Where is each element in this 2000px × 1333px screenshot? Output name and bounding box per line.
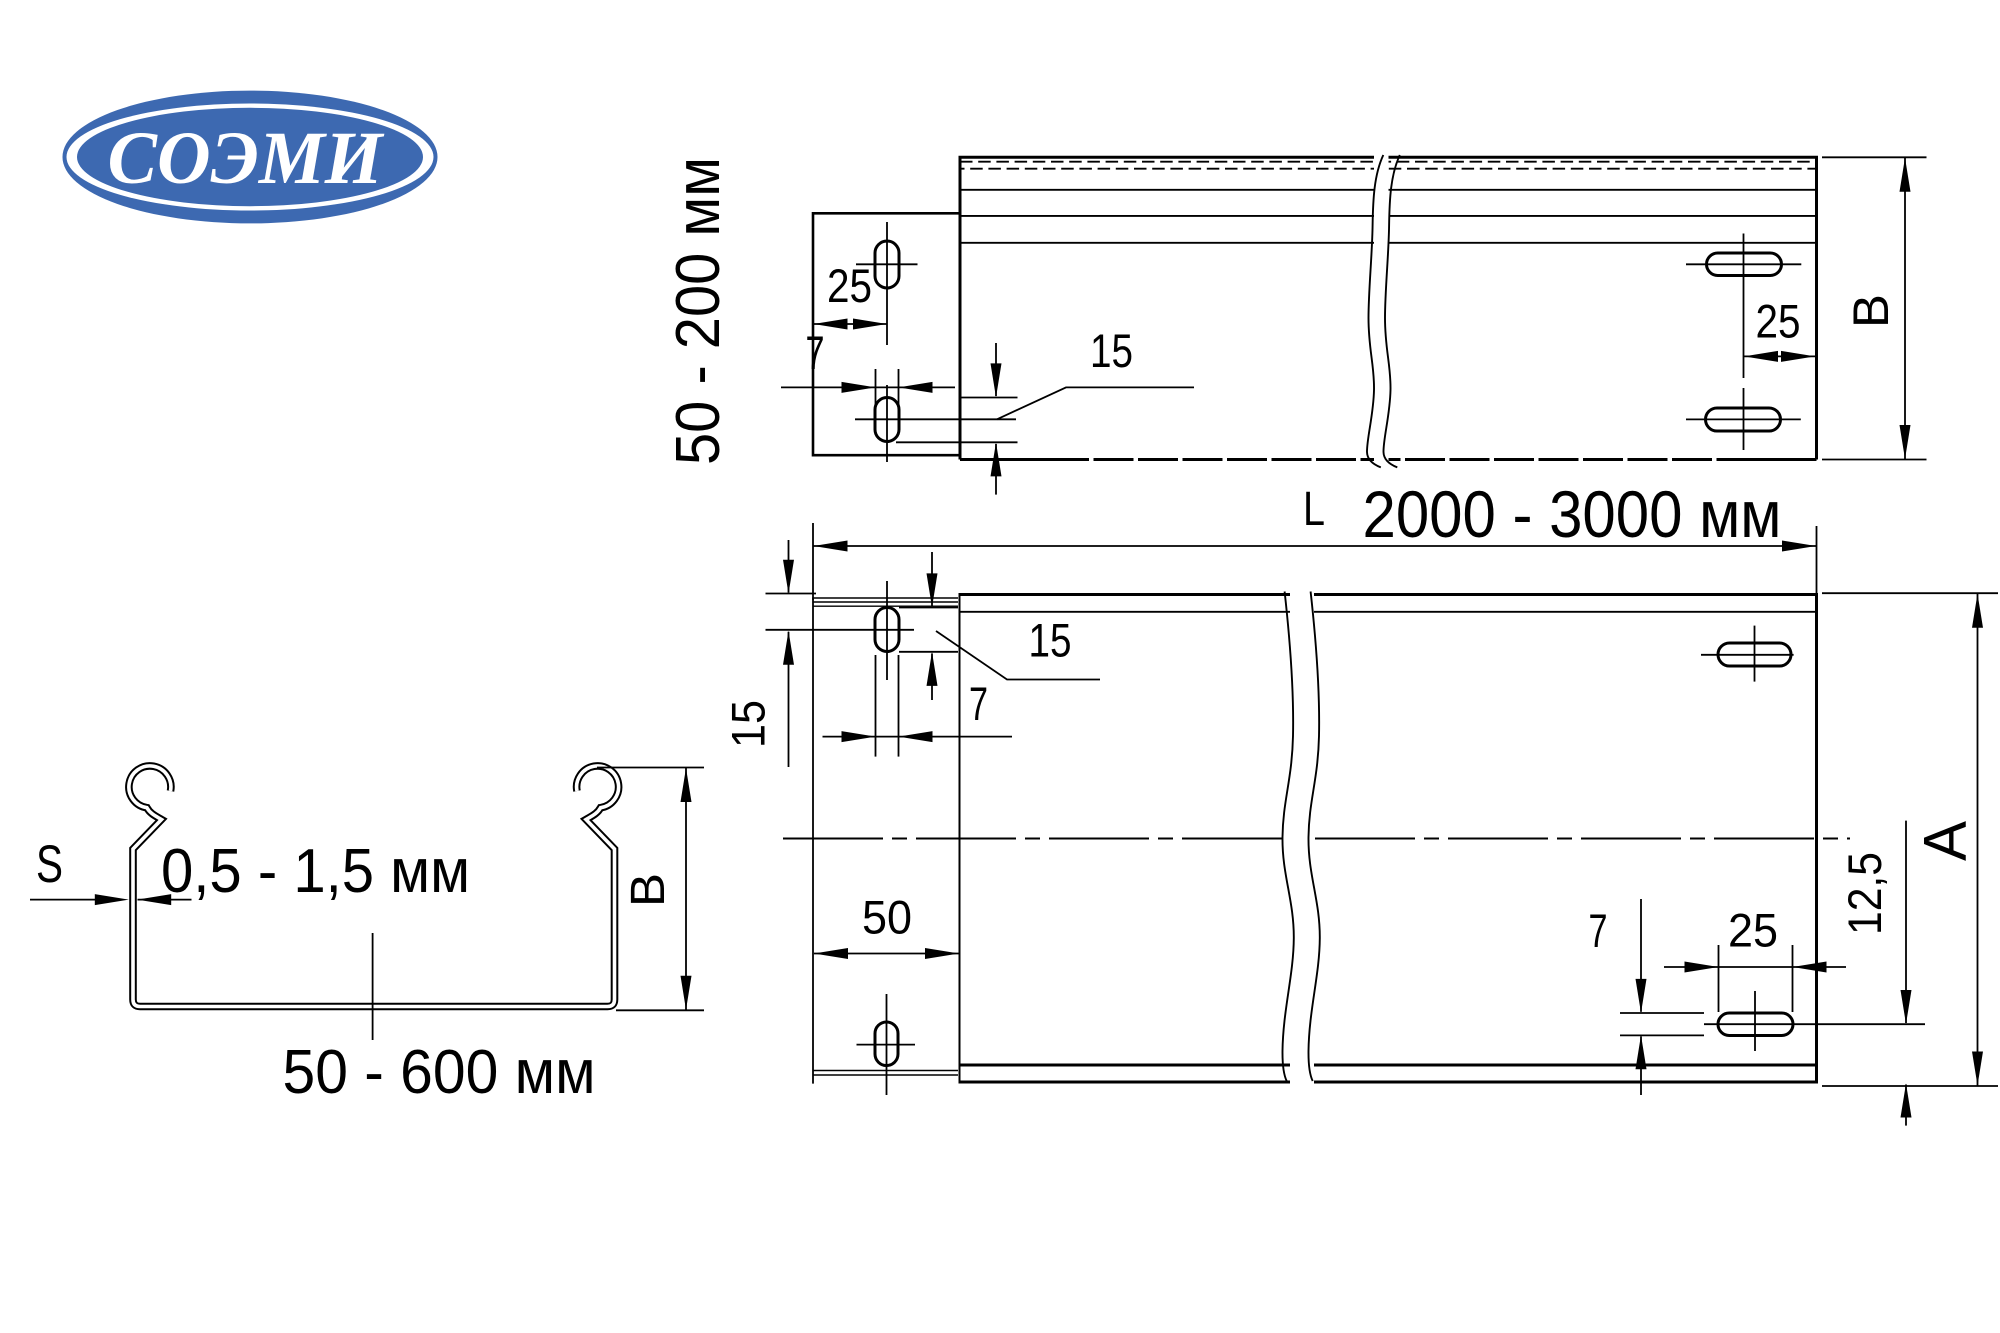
svg-text:50 - 200 мм: 50 - 200 мм bbox=[664, 157, 733, 465]
svg-text:7: 7 bbox=[806, 326, 825, 379]
svg-text:50: 50 bbox=[862, 891, 912, 944]
svg-text:0,5 - 1,5 мм: 0,5 - 1,5 мм bbox=[161, 837, 470, 906]
svg-text:15: 15 bbox=[722, 700, 775, 748]
svg-text:25: 25 bbox=[1756, 295, 1801, 348]
svg-text:50 - 600 мм: 50 - 600 мм bbox=[283, 1038, 596, 1107]
svg-text:12,5: 12,5 bbox=[1838, 852, 1891, 935]
svg-text:7: 7 bbox=[969, 677, 988, 730]
svg-text:15: 15 bbox=[1090, 324, 1133, 377]
svg-text:7: 7 bbox=[1589, 904, 1608, 957]
svg-text:L: L bbox=[1303, 483, 1325, 536]
svg-text:25: 25 bbox=[1728, 904, 1778, 957]
svg-text:2000 - 3000 мм: 2000 - 3000 мм bbox=[1363, 477, 1782, 551]
svg-text:B: B bbox=[622, 873, 675, 907]
svg-text:15: 15 bbox=[1029, 614, 1072, 667]
svg-text:СОЭМИ: СОЭМИ bbox=[108, 117, 386, 200]
svg-text:A: A bbox=[1912, 821, 1979, 861]
svg-text:B: B bbox=[1843, 294, 1899, 328]
svg-text:25: 25 bbox=[827, 259, 872, 312]
svg-text:S: S bbox=[36, 835, 63, 894]
